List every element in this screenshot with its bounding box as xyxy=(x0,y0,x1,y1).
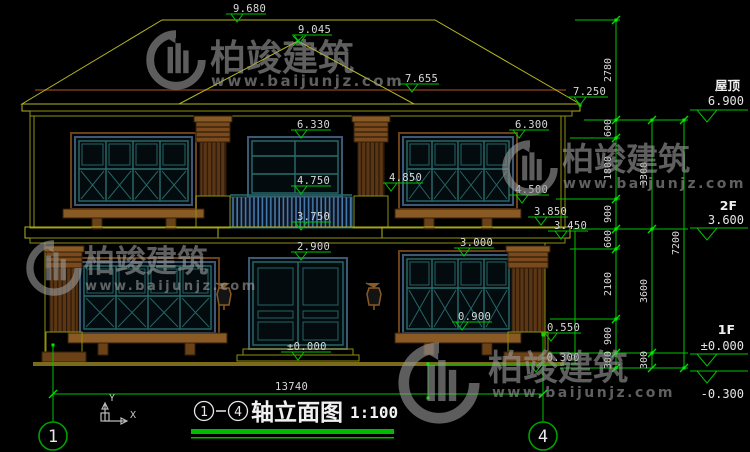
svg-text:9.680: 9.680 xyxy=(233,3,266,15)
elevation-marker: 3.450 xyxy=(548,220,588,239)
svg-text:Y: Y xyxy=(109,393,115,404)
main-eave xyxy=(22,104,580,116)
svg-text:9.045: 9.045 xyxy=(298,24,331,36)
title-underline xyxy=(191,429,394,434)
elevation-marker: 6.330 xyxy=(291,119,331,138)
watermark-bottom-right: 柏竣建筑 www.baijunjz.com xyxy=(404,348,675,419)
level-marker-1f: 1F ±0.000 xyxy=(690,322,748,366)
level-marker-ground: -0.300 xyxy=(690,371,748,401)
elevation-drawing: 2780 600 1800 900 600 2100 900 300 3300 … xyxy=(0,0,750,452)
svg-text:6.330: 6.330 xyxy=(297,119,330,131)
svg-text:3.000: 3.000 xyxy=(460,237,493,249)
svg-text:轴立面图: 轴立面图 xyxy=(251,399,343,426)
svg-text:4: 4 xyxy=(538,427,548,447)
svg-text:柏竣建筑: 柏竣建筑 xyxy=(488,348,628,389)
svg-text:600: 600 xyxy=(603,119,614,137)
svg-text:6.300: 6.300 xyxy=(515,119,548,131)
axis-bubble-left: 1 xyxy=(39,422,67,450)
svg-text:柏竣建筑: 柏竣建筑 xyxy=(562,140,690,178)
svg-text:4.750: 4.750 xyxy=(297,175,330,187)
svg-text:7.655: 7.655 xyxy=(405,73,438,85)
ucs-icon: Y X xyxy=(101,393,136,424)
window-sill xyxy=(395,209,521,218)
brand-logo-icon xyxy=(404,348,475,419)
elevation-marker: 9.680 xyxy=(226,3,266,22)
axis-bubble-right: 4 xyxy=(529,422,557,450)
svg-text:2.900: 2.900 xyxy=(297,241,330,253)
svg-text:6.900: 6.900 xyxy=(708,94,744,108)
svg-text:1:100: 1:100 xyxy=(350,403,398,422)
elevation-marker: 6.300 xyxy=(509,119,549,138)
svg-text:屋顶: 屋顶 xyxy=(715,78,741,93)
window-1f-right xyxy=(395,251,521,355)
brand-logo-icon xyxy=(150,34,202,86)
level-markers: 屋顶 6.900 2F 3.600 1F ±0.000 -0.300 xyxy=(690,78,748,401)
svg-text:0.900: 0.900 xyxy=(458,311,491,323)
svg-text:-0.300: -0.300 xyxy=(701,387,744,401)
svg-text:3.450: 3.450 xyxy=(554,220,587,232)
elevation-marker: 3.000 xyxy=(454,237,494,256)
svg-text:2100: 2100 xyxy=(603,272,614,296)
title-underline-thin xyxy=(191,437,394,439)
svg-text:900: 900 xyxy=(603,327,614,345)
svg-text:600: 600 xyxy=(603,230,614,248)
svg-text:www.baijunjz.com: www.baijunjz.com xyxy=(85,279,258,294)
svg-text:±0.000: ±0.000 xyxy=(287,341,327,353)
window-sill xyxy=(395,333,521,343)
svg-text:1: 1 xyxy=(48,427,58,447)
elevation-marker: 7.250 xyxy=(567,86,608,105)
balcony-railing xyxy=(230,195,352,228)
svg-text:2F: 2F xyxy=(720,198,737,213)
svg-text:柏竣建筑: 柏竣建筑 xyxy=(84,244,208,280)
svg-text:900: 900 xyxy=(603,205,614,223)
svg-text:2780: 2780 xyxy=(603,58,614,82)
svg-text:300: 300 xyxy=(639,351,650,369)
svg-text:4: 4 xyxy=(234,405,242,420)
svg-text:1F: 1F xyxy=(718,322,735,337)
level-marker-2f: 2F 3.600 xyxy=(690,198,748,240)
svg-text:4.850: 4.850 xyxy=(389,172,422,184)
svg-text:3.750: 3.750 xyxy=(297,211,330,223)
window-sill xyxy=(68,333,227,343)
balcony-door xyxy=(248,137,342,197)
svg-text:www.baijunjz.com: www.baijunjz.com xyxy=(563,176,746,192)
svg-text:7.250: 7.250 xyxy=(573,86,606,98)
svg-text:7200: 7200 xyxy=(671,231,682,255)
svg-text:±0.000: ±0.000 xyxy=(701,339,744,353)
svg-text:3.850: 3.850 xyxy=(534,206,567,218)
svg-text:13740: 13740 xyxy=(275,381,308,393)
watermark-top: 柏竣建筑 www.baijunjz.com xyxy=(150,34,404,90)
wall-lamp-right xyxy=(366,283,381,310)
svg-text:www.baijunjz.com: www.baijunjz.com xyxy=(211,72,404,90)
svg-text:www.baijunjz.com: www.baijunjz.com xyxy=(492,385,675,401)
column-2f-right xyxy=(352,116,390,228)
svg-text:1: 1 xyxy=(200,405,208,420)
elevation-marker: ±0.000 xyxy=(281,341,331,360)
drawing-title: 1 4 轴立面图 1:100 xyxy=(191,399,398,439)
window-sill xyxy=(63,209,204,218)
svg-text:3.600: 3.600 xyxy=(708,213,744,227)
svg-text:3600: 3600 xyxy=(639,279,650,303)
svg-text:0.550: 0.550 xyxy=(547,322,580,334)
svg-text:X: X xyxy=(130,410,136,421)
level-marker-roof: 屋顶 6.900 xyxy=(690,78,748,122)
window-2f-left xyxy=(63,133,204,229)
